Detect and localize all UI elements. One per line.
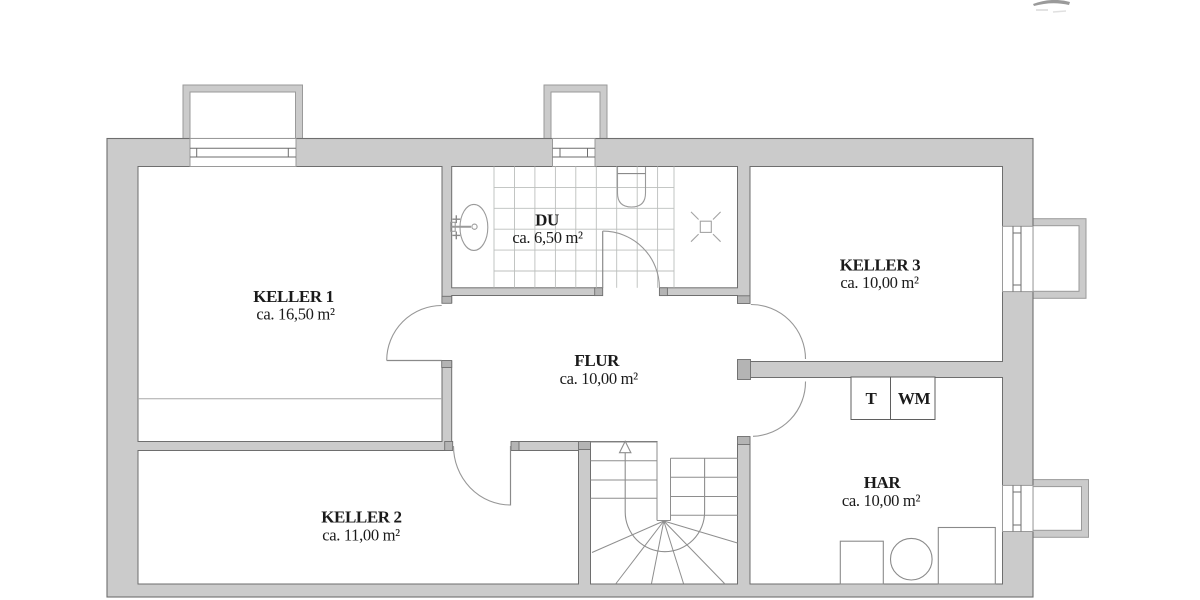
svg-text:ca. 10,00 m²: ca. 10,00 m² <box>560 369 639 388</box>
svg-text:ca. 6,50 m²: ca. 6,50 m² <box>512 228 583 247</box>
svg-text:KELLER 1: KELLER 1 <box>253 287 333 306</box>
svg-text:ca. 11,00 m²: ca. 11,00 m² <box>322 526 400 545</box>
svg-text:ca. 10,00 m²: ca. 10,00 m² <box>840 273 919 292</box>
svg-text:DU: DU <box>535 211 559 230</box>
svg-text:KELLER 2: KELLER 2 <box>321 508 401 527</box>
svg-text:FLUR: FLUR <box>574 351 620 370</box>
svg-text:T: T <box>866 389 878 408</box>
svg-text:WM: WM <box>898 389 931 408</box>
svg-text:HAR: HAR <box>864 473 902 492</box>
svg-text:ca. 10,00 m²: ca. 10,00 m² <box>842 491 921 510</box>
svg-text:ca. 16,50 m²: ca. 16,50 m² <box>256 305 335 324</box>
svg-text:KELLER 3: KELLER 3 <box>840 256 920 275</box>
